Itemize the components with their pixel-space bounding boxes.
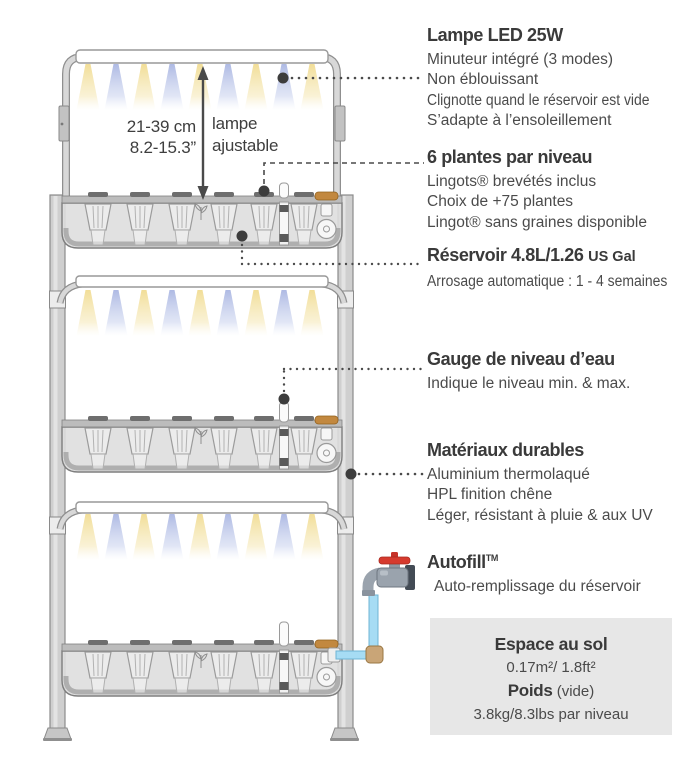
feature-line: Clignotte quand le réservoir est vide bbox=[427, 91, 680, 111]
feature-line: Minuteur intégré (3 modes) bbox=[427, 50, 680, 70]
lamp-adjustable-label: lampe ajustable bbox=[212, 113, 312, 157]
feature-autofill: AutofillTM Auto-remplissage du réservoir bbox=[427, 547, 680, 597]
spec-box: Espace au sol 0.17m²/ 1.8ft² Poids (vide… bbox=[430, 618, 672, 735]
feature-materials: Matériaux durables Aluminium thermolaqué… bbox=[427, 439, 680, 526]
water-pipe bbox=[328, 595, 383, 663]
feature-line: Lingot® sans graines disponible bbox=[427, 213, 680, 233]
feature-title: Lampe LED 25W bbox=[427, 24, 680, 46]
callout-lamp bbox=[278, 73, 425, 84]
feature-line: Léger, résistant à pluie & aux UV bbox=[427, 506, 680, 526]
feature-line: HPL finition chêne bbox=[427, 485, 680, 505]
feature-line: Lingots® brevétés inclus bbox=[427, 172, 680, 192]
feature-line: Aluminium thermolaqué bbox=[427, 465, 680, 485]
spec-box-title: Espace au sol bbox=[430, 633, 672, 656]
feature-title: Réservoir 4.8L/1.26 US Gal bbox=[427, 244, 680, 268]
callout-materials bbox=[346, 469, 425, 480]
feature-title: Matériaux durables bbox=[427, 439, 680, 461]
feature-line: Choix de +75 plantes bbox=[427, 192, 680, 212]
feature-title: Gauge de niveau d’eau bbox=[427, 348, 680, 370]
feature-line: S’adapte à l’ensoleillement bbox=[427, 111, 680, 131]
spec-weight-value: 3.8kg/8.3lbs par niveau bbox=[430, 703, 672, 726]
feature-plants: 6 plantes par niveau Lingots® brevétés i… bbox=[427, 146, 680, 233]
spec-area-value: 0.17m²/ 1.8ft² bbox=[430, 656, 672, 679]
feature-gauge: Gauge de niveau d’eau Indique le niveau … bbox=[427, 348, 680, 394]
spec-weight-label: Poids (vide) bbox=[430, 679, 672, 703]
water-gauge-tube bbox=[280, 183, 289, 646]
lamp-height-imperial: 8.2-15.3” bbox=[88, 137, 196, 158]
feature-lamp-led: Lampe LED 25W Minuteur intégré (3 modes)… bbox=[427, 24, 680, 132]
feature-line: Auto-remplissage du réservoir bbox=[427, 577, 680, 597]
lamp-height-label: 21-39 cm 8.2-15.3” bbox=[88, 116, 196, 158]
feature-title: 6 plantes par niveau bbox=[427, 146, 680, 168]
feature-line: Arrosage automatique : 1 - 4 semaines bbox=[427, 272, 680, 292]
faucet-icon bbox=[362, 552, 415, 596]
feature-line: Non éblouissant bbox=[427, 70, 680, 90]
product-infographic: 21-39 cm 8.2-15.3” lampe ajustable Lampe… bbox=[0, 0, 680, 763]
feature-reservoir: Réservoir 4.8L/1.26 US Gal Arrosage auto… bbox=[427, 244, 680, 292]
feature-line: Indique le niveau min. & max. bbox=[427, 374, 680, 394]
feature-title: AutofillTM bbox=[427, 547, 680, 573]
plant-trays bbox=[62, 192, 342, 696]
lamp-height-metric: 21-39 cm bbox=[88, 116, 196, 137]
